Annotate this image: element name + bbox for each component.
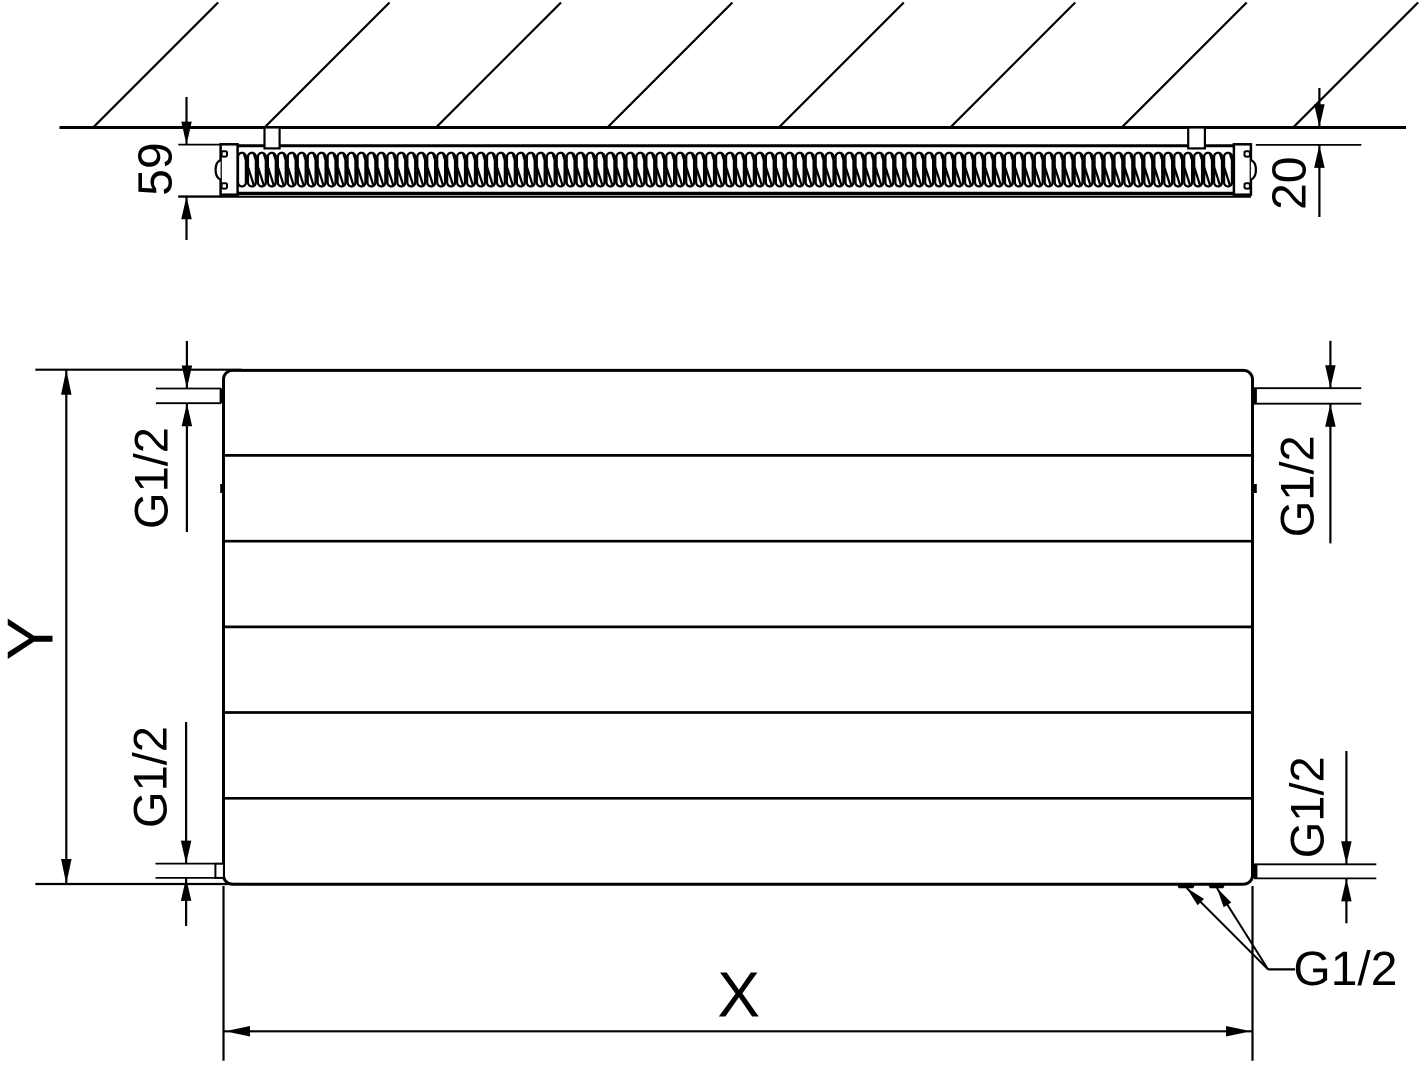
svg-text:G1/2: G1/2: [1271, 435, 1324, 537]
svg-text:G1/2: G1/2: [124, 726, 177, 828]
svg-text:59: 59: [129, 142, 182, 195]
svg-text:20: 20: [1263, 157, 1316, 210]
svg-text:G1/2: G1/2: [1281, 756, 1334, 858]
svg-text:G1/2: G1/2: [125, 427, 178, 529]
svg-text:X: X: [717, 959, 760, 1031]
svg-text:G1/2: G1/2: [1293, 943, 1397, 996]
svg-text:Y: Y: [0, 617, 67, 660]
